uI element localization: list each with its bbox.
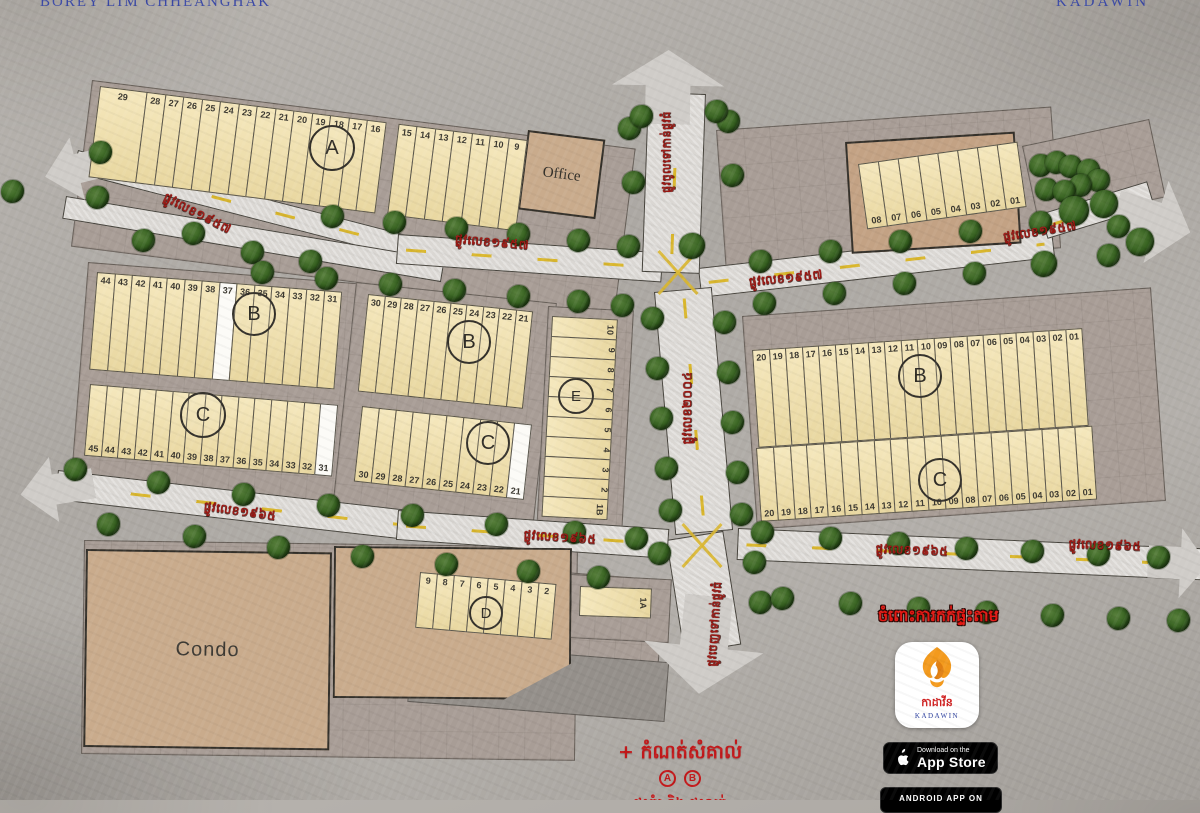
tree (351, 545, 374, 568)
plot-number: 9 (607, 347, 617, 353)
plot-number: 21 (274, 111, 293, 123)
app-store-line2: App Store (917, 755, 986, 770)
tree (771, 587, 794, 610)
tree (721, 164, 744, 187)
tree (567, 290, 590, 313)
plot-block-b-mid: 30292827262524232221 (358, 294, 532, 409)
plot-number: 7 (605, 387, 615, 393)
plot-number: 24 (219, 104, 238, 116)
plot-number: 02 (1063, 488, 1079, 499)
block-letter-b: B (232, 292, 276, 336)
plot-number: 33 (289, 291, 306, 302)
plot-number: 27 (406, 474, 423, 486)
app-store-badge[interactable]: Download on the App Store (883, 742, 998, 774)
plot-number: 01 (1066, 331, 1082, 342)
tree (819, 240, 842, 263)
tree (611, 294, 634, 317)
block-letter-c: C (180, 392, 226, 438)
tree (749, 591, 772, 614)
plot-number: 32 (306, 292, 323, 303)
plot-number: 38 (200, 453, 216, 464)
tree (730, 503, 753, 526)
tree (435, 553, 458, 576)
plot-number: 41 (149, 279, 166, 290)
plot-number: 03 (965, 200, 985, 213)
plot-number: 23 (238, 107, 257, 119)
plot-number: 6 (471, 580, 488, 591)
tree (717, 361, 740, 384)
plot-number: 22 (499, 311, 515, 323)
tree (485, 513, 508, 536)
tree (89, 141, 112, 164)
plot-number: 02 (1050, 332, 1066, 343)
plot-number: 06 (906, 208, 926, 221)
tree (97, 513, 120, 536)
plot-number: 08 (866, 214, 886, 227)
plot-number: 18 (786, 350, 802, 361)
legend-title: + កំណត់សំគាល់ (560, 740, 800, 768)
plot-number: 16 (828, 503, 844, 514)
kadawin-latin-label: KADAWIN (895, 712, 979, 720)
plot-block-e: 10987654321B (542, 316, 618, 519)
plot-block-b-left: 4443424140393837363534333231 (89, 272, 341, 389)
plot-number: 15 (836, 346, 852, 357)
tree (839, 592, 862, 615)
tree (753, 292, 776, 315)
plot-number: 33 (283, 459, 299, 470)
plot-number: 11 (471, 136, 490, 148)
tree (646, 357, 669, 380)
road-center-line (406, 248, 654, 268)
plot-number: 25 (440, 478, 457, 490)
plot-number: 22 (256, 109, 275, 121)
plot-number: 37 (217, 454, 233, 465)
tree (705, 100, 728, 123)
block-letter-c: C (918, 458, 962, 502)
tree (726, 461, 749, 484)
plot-number: 27 (417, 302, 433, 314)
plot-number: 9 (420, 575, 437, 586)
block-letter-a: A (309, 125, 355, 171)
tree (1, 180, 24, 203)
plot-number: 35 (250, 457, 266, 468)
plot-number: 20 (761, 508, 777, 519)
plot-number: 12 (895, 499, 911, 510)
plot-number: 28 (389, 472, 406, 484)
tree (517, 560, 540, 583)
plot-number: 14 (852, 345, 868, 356)
tree (713, 311, 736, 334)
plot-number: 23 (483, 309, 499, 321)
plot-number: 44 (97, 275, 114, 286)
tree (1021, 540, 1044, 563)
plot-number: 17 (811, 504, 827, 515)
plot-number: 13 (878, 500, 894, 511)
legend-more-cutoff: ផ្ទះគំរូ និង ផ្ទះលក់ (560, 794, 800, 800)
tree (823, 282, 846, 305)
plot-number: 05 (1000, 335, 1016, 346)
plot-number: 34 (266, 458, 282, 469)
tree (679, 233, 705, 259)
condo-parcel: Condo (83, 549, 332, 750)
plot-number: 5 (603, 427, 613, 433)
plot-number: 04 (1029, 490, 1045, 501)
kadawin-flame-icon (914, 645, 960, 693)
plot-number: 31 (324, 293, 341, 304)
block-letter-d: D (469, 596, 503, 630)
tree (64, 458, 87, 481)
plot-number: 11 (901, 342, 917, 353)
plot-number: 45 (85, 443, 101, 454)
plot-number: 12 (453, 134, 472, 146)
kadawin-logo-card: កាដាវីន KADAWIN (895, 642, 979, 728)
plot-number: 25 (450, 306, 466, 318)
plot-number: 29 (372, 471, 389, 483)
plot-number: 12 (885, 343, 901, 354)
tree (567, 229, 590, 252)
tree (622, 171, 645, 194)
plot-number: 19 (778, 507, 794, 518)
plot-number: 42 (132, 278, 149, 289)
tree (1031, 251, 1057, 277)
plot-number: 4 (505, 582, 522, 593)
street-label: ផ្លូវលេខ១៩៦៥ (875, 541, 948, 562)
legend-badge-a: A (659, 770, 676, 787)
plot-number: 26 (433, 304, 449, 316)
plot-number: 29 (99, 89, 146, 105)
tree (963, 262, 986, 285)
tree (751, 521, 774, 544)
plot-number: 15 (845, 502, 861, 513)
tree (617, 235, 640, 258)
plot-number: 14 (416, 129, 435, 141)
plot-number: 02 (985, 197, 1005, 210)
tree (383, 211, 406, 234)
block-letter-b: B (447, 320, 491, 364)
plot-number: 06 (996, 492, 1012, 503)
plot-number: 05 (926, 205, 946, 218)
tree (251, 261, 274, 284)
tree (1167, 609, 1190, 632)
tree (1107, 215, 1130, 238)
plot-block-plot-1a: 1A (579, 586, 652, 617)
plot-number: 5 (488, 581, 505, 592)
plot-number: 3 (600, 467, 610, 473)
plot-number: 04 (946, 203, 966, 216)
plot-number: 13 (868, 344, 884, 355)
tree (315, 267, 338, 290)
plot-number: 01 (1079, 487, 1095, 498)
tree (819, 527, 842, 550)
plot-number: 28 (400, 301, 416, 313)
plot-number: 32 (299, 461, 315, 472)
plot-number: 16 (819, 348, 835, 359)
plot-number: 1A (638, 597, 648, 609)
android-badge-line1: ANDROID APP ON (899, 794, 983, 803)
plot-number: 05 (1012, 491, 1028, 502)
tree (955, 537, 978, 560)
plot-number: 4 (601, 447, 611, 453)
plot-number: 2 (538, 585, 555, 596)
plot-number: 24 (457, 480, 474, 492)
tree (379, 273, 402, 296)
plot-number: 36 (233, 455, 249, 466)
plot-cell: 1B (541, 496, 608, 520)
plot-number: 34 (271, 289, 288, 300)
plot-number: 01 (1005, 194, 1025, 207)
block-letter-c: C (466, 421, 510, 465)
plot-number: 3 (521, 584, 538, 595)
plot-number: 8 (437, 577, 454, 588)
plot-number: 30 (355, 469, 372, 481)
condo-label: Condo (175, 638, 239, 662)
legend-badges: A B (560, 770, 800, 787)
tree (183, 525, 206, 548)
plot-number: 39 (184, 451, 200, 462)
tree (630, 105, 653, 128)
tree (1041, 604, 1064, 627)
tree (1097, 244, 1120, 267)
street-label: ផ្លូវលេខ១៩៦៥ (1068, 536, 1141, 557)
plot-number: 18 (795, 506, 811, 517)
tree (321, 205, 344, 228)
plot-number: 17 (348, 120, 367, 132)
android-badge[interactable]: ANDROID APP ON (880, 787, 1002, 813)
plot-number: 7 (454, 578, 471, 589)
tree (959, 220, 982, 243)
plot-number: 21 (515, 313, 531, 325)
plot-number: 23 (473, 482, 490, 494)
street-label: ផ្លូវចូលទៅកាន់ផ្លូវធំ (660, 111, 676, 193)
plot-number: 15 (397, 127, 416, 139)
tree (132, 229, 155, 252)
tree (147, 471, 170, 494)
plot-number: 43 (118, 446, 134, 457)
plot-number: 19 (770, 351, 786, 362)
plot-number: 40 (167, 281, 184, 292)
tree (401, 504, 424, 527)
plot-number: 2 (599, 487, 609, 493)
apple-icon (893, 748, 910, 769)
tree (507, 285, 530, 308)
plot-number: 11 (912, 498, 928, 509)
plot-number: 30 (368, 297, 384, 309)
tree (749, 250, 772, 273)
plot-number: 27 (164, 97, 183, 109)
plot-number: 28 (146, 95, 165, 107)
plot-number: 37 (219, 285, 236, 296)
plot-number: 26 (423, 476, 440, 488)
plot-number: 8 (606, 367, 616, 373)
plot-number: 24 (466, 307, 482, 319)
plot-number: 14 (862, 501, 878, 512)
plot-number: 17 (803, 349, 819, 360)
plot-number: 10 (489, 138, 508, 150)
plot-number: 13 (434, 131, 453, 143)
plot-number: 39 (184, 282, 201, 293)
tree (1107, 607, 1130, 630)
plot-number: 25 (201, 102, 220, 114)
plot-number: 31 (315, 462, 331, 473)
tree (721, 411, 744, 434)
plot-number: 38 (202, 283, 219, 294)
plot-number: 9 (508, 141, 527, 153)
tree (86, 186, 109, 209)
plot-number: 43 (114, 276, 131, 287)
project-title: BOREY LIM CHHEANGHAK (40, 0, 271, 11)
plot-number: 44 (102, 444, 118, 455)
office-label: Office (542, 164, 582, 186)
tree (655, 457, 678, 480)
plot-number: 40 (167, 450, 183, 461)
plot-number: 07 (979, 493, 995, 504)
plot-number: 22 (490, 483, 507, 495)
tree (650, 407, 673, 430)
tree (743, 551, 766, 574)
plot-number: 42 (135, 447, 151, 458)
plot-number: 07 (967, 338, 983, 349)
plot-number: 20 (753, 352, 769, 363)
kadawin-khmer-label: កាដាវីន (895, 696, 979, 712)
plot-number: 08 (962, 494, 978, 505)
tree (267, 536, 290, 559)
tree (641, 307, 664, 330)
plot-number: 21 (507, 485, 524, 497)
street-label: ផ្លូវលេខ២០០៤ (679, 372, 697, 445)
office-parcel: Office (518, 130, 605, 219)
tree (1147, 546, 1170, 569)
plot-number: 10 (918, 341, 934, 352)
tree (317, 494, 340, 517)
plot-number: 26 (183, 100, 202, 112)
plot-number: 08 (951, 339, 967, 350)
plot-number: 41 (151, 448, 167, 459)
tree (648, 542, 671, 565)
tree (659, 499, 682, 522)
brand-title: KADAWIN (1056, 0, 1149, 11)
block-letter-b: B (898, 354, 942, 398)
plot-number: 03 (1046, 489, 1062, 500)
tree (889, 230, 912, 253)
block-letter-e: E (558, 378, 594, 414)
tree (587, 566, 610, 589)
plot-number: 6 (604, 407, 614, 413)
plot-number: 1B (595, 503, 606, 515)
plot-number: 16 (366, 123, 385, 135)
plot-number: 09 (934, 340, 950, 351)
plot-number: 20 (293, 114, 312, 126)
tree (625, 527, 648, 550)
legend-badge-b: B (684, 770, 701, 787)
plot-number: 06 (984, 337, 1000, 348)
plot-number: 03 (1033, 333, 1049, 344)
plot-number: 29 (384, 299, 400, 311)
plot-number: 10 (605, 324, 616, 335)
tree (241, 241, 264, 264)
plot-cell: 1A (579, 586, 652, 618)
plot-number: 04 (1017, 334, 1033, 345)
plot-number: 07 (886, 211, 906, 224)
tree (443, 279, 466, 302)
booking-note: ចំពោះការកក់ផ្ទះតាម (878, 605, 999, 629)
tree (893, 272, 916, 295)
